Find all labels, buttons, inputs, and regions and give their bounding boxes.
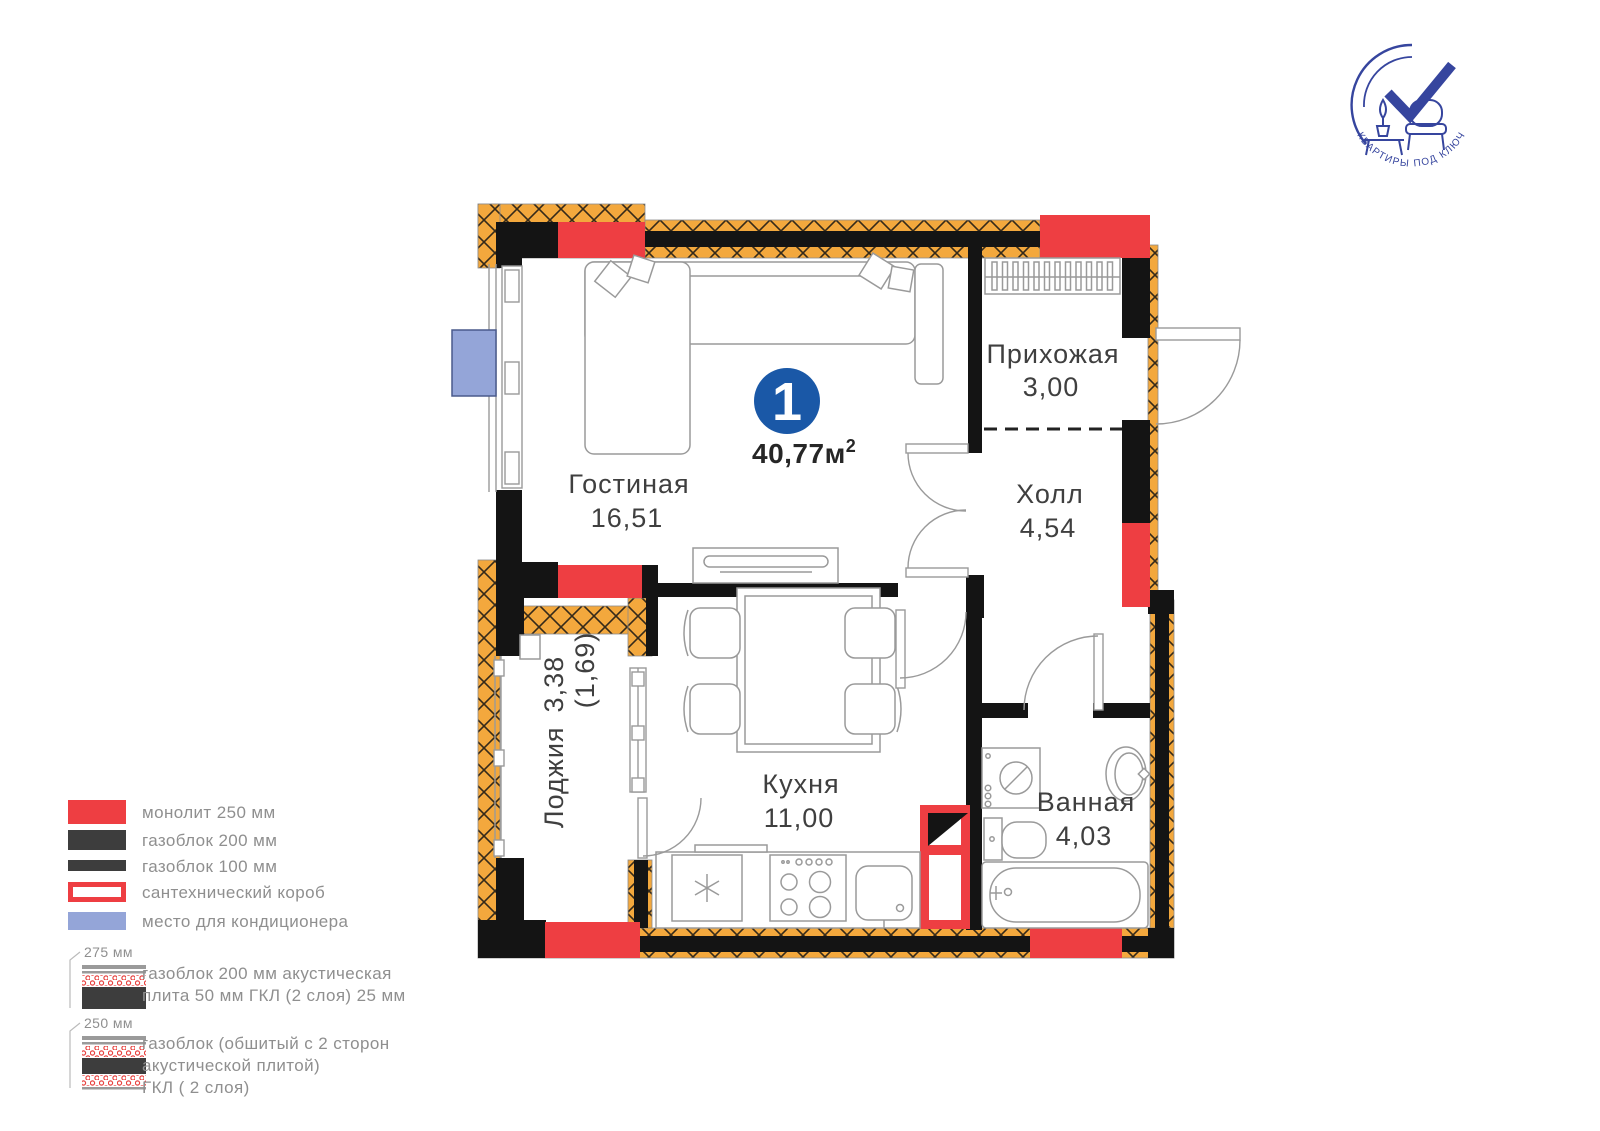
svg-text:газоблок (обшитый с 2 сторон: газоблок (обшитый с 2 сторон xyxy=(142,1034,390,1053)
label-living-room: Гостиная xyxy=(568,469,689,499)
label-hallway: Прихожая xyxy=(986,339,1119,369)
svg-text:плита 50 мм ГКЛ (2 слоя) 25 мм: плита 50 мм ГКЛ (2 слоя) 25 мм xyxy=(142,986,406,1005)
legend: монолит 250 мм газоблок 200 мм газоблок … xyxy=(68,800,406,1097)
kitchen-counter xyxy=(656,845,920,928)
brand-logo: КВАРТИРЫ ПОД КЛЮЧ BIG+ xyxy=(0,0,1470,170)
floor-plan-page: Гостиная 16,51 Прихожая 3,00 Холл 4,54 К… xyxy=(0,0,1600,1131)
legend-swatch-sanitary-duct xyxy=(71,885,124,900)
double-door-living-hall xyxy=(906,444,968,577)
label-hall: Холл xyxy=(1016,479,1084,509)
label-bathroom: Ванная xyxy=(1037,787,1135,817)
rooms-count: 1 xyxy=(772,372,802,432)
bathroom-door xyxy=(1024,634,1103,710)
unit-badge: 1 40,77м2 xyxy=(752,368,856,469)
loggia-cabinet xyxy=(520,635,540,659)
washing-machine xyxy=(982,748,1040,808)
svg-text:газоблок 100 мм: газоблок 100 мм xyxy=(142,857,277,876)
svg-text:275 мм: 275 мм xyxy=(84,944,133,960)
legend-item-gasblock-100: газоблок 100 мм xyxy=(68,857,277,876)
label-hall-area: 4,54 xyxy=(1020,513,1077,543)
legend-swatch-gasblock-100 xyxy=(68,860,126,871)
floor-plan-svg: Гостиная 16,51 Прихожая 3,00 Холл 4,54 К… xyxy=(0,0,1600,1131)
legend-item-sanitary-duct: сантехнический короб xyxy=(71,883,326,902)
svg-text:250 мм: 250 мм xyxy=(84,1015,133,1031)
legend-swatch-ac-spot xyxy=(68,912,126,930)
label-bathroom-area: 4,03 xyxy=(1056,821,1113,851)
ac-unit-spot xyxy=(452,330,496,396)
label-living-room-area: 16,51 xyxy=(591,503,664,533)
sanitary-duct xyxy=(920,810,970,925)
toilet xyxy=(984,818,1046,860)
svg-text:ГКЛ ( 2 слоя): ГКЛ ( 2 слоя) xyxy=(142,1078,250,1097)
legend-swatch-gasblock-200 xyxy=(68,830,126,850)
entrance-door xyxy=(1156,328,1240,424)
legend-item-monolith: монолит 250 мм xyxy=(68,800,276,824)
tv-cabinet xyxy=(693,548,838,583)
legend-item-gasblock-200: газоблок 200 мм xyxy=(68,830,277,850)
total-area: 40,77м2 xyxy=(752,436,856,469)
svg-text:сантехнический короб: сантехнический короб xyxy=(142,883,325,902)
logo-outer-arc xyxy=(1352,45,1412,144)
svg-text:акустической плитой): акустической плитой) xyxy=(142,1056,320,1075)
bathtub xyxy=(982,862,1148,928)
wardrobe xyxy=(985,258,1120,294)
kitchen-door xyxy=(896,610,966,688)
label-loggia: Лоджия3,38 xyxy=(539,656,569,828)
legend-acoustic-275: 275 мм газоблок 200 мм акустическая плит… xyxy=(70,944,406,1009)
label-loggia-area2: (1,69) xyxy=(570,632,600,709)
balcony-door xyxy=(638,798,701,858)
logo-arc-text: КВАРТИРЫ ПОД КЛЮЧ BIG+ xyxy=(0,0,1470,170)
legend-item-ac-spot: место для кондиционера xyxy=(68,912,348,931)
legend-swatch-monolith xyxy=(68,800,126,824)
label-hallway-area: 3,00 xyxy=(1023,372,1080,402)
svg-text:газоблок 200 мм акустическая: газоблок 200 мм акустическая xyxy=(142,964,392,983)
label-kitchen: Кухня xyxy=(762,769,839,799)
svg-text:монолит 250 мм: монолит 250 мм xyxy=(142,803,276,822)
svg-text:газоблок 200 мм: газоблок 200 мм xyxy=(142,831,277,850)
label-kitchen-area: 11,00 xyxy=(764,803,835,833)
svg-text:место для кондиционера: место для кондиционера xyxy=(142,912,348,931)
legend-acoustic-250: 250 мм газоблок (обшитый с 2 сторон акус… xyxy=(70,1015,390,1097)
